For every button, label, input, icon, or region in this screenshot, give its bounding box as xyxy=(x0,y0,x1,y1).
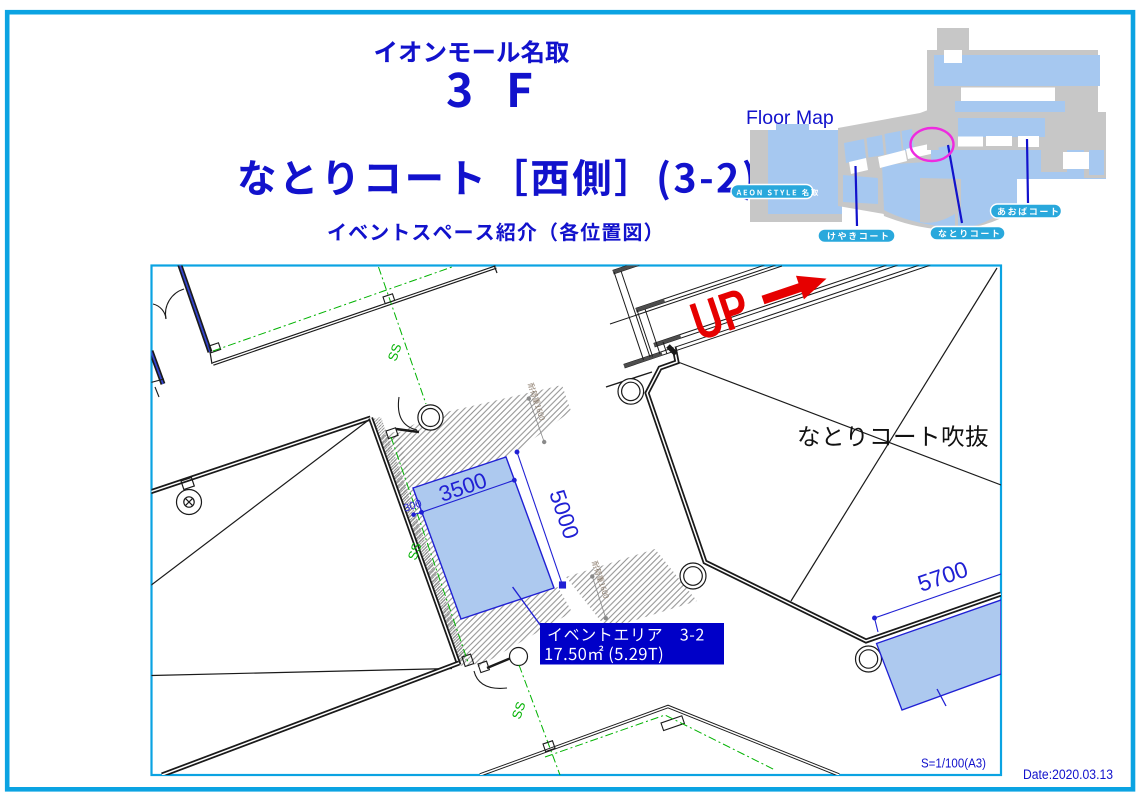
svg-text:Date:2020.03.13: Date:2020.03.13 xyxy=(1023,767,1113,782)
svg-text:S=1/100(A3): S=1/100(A3) xyxy=(921,756,986,771)
